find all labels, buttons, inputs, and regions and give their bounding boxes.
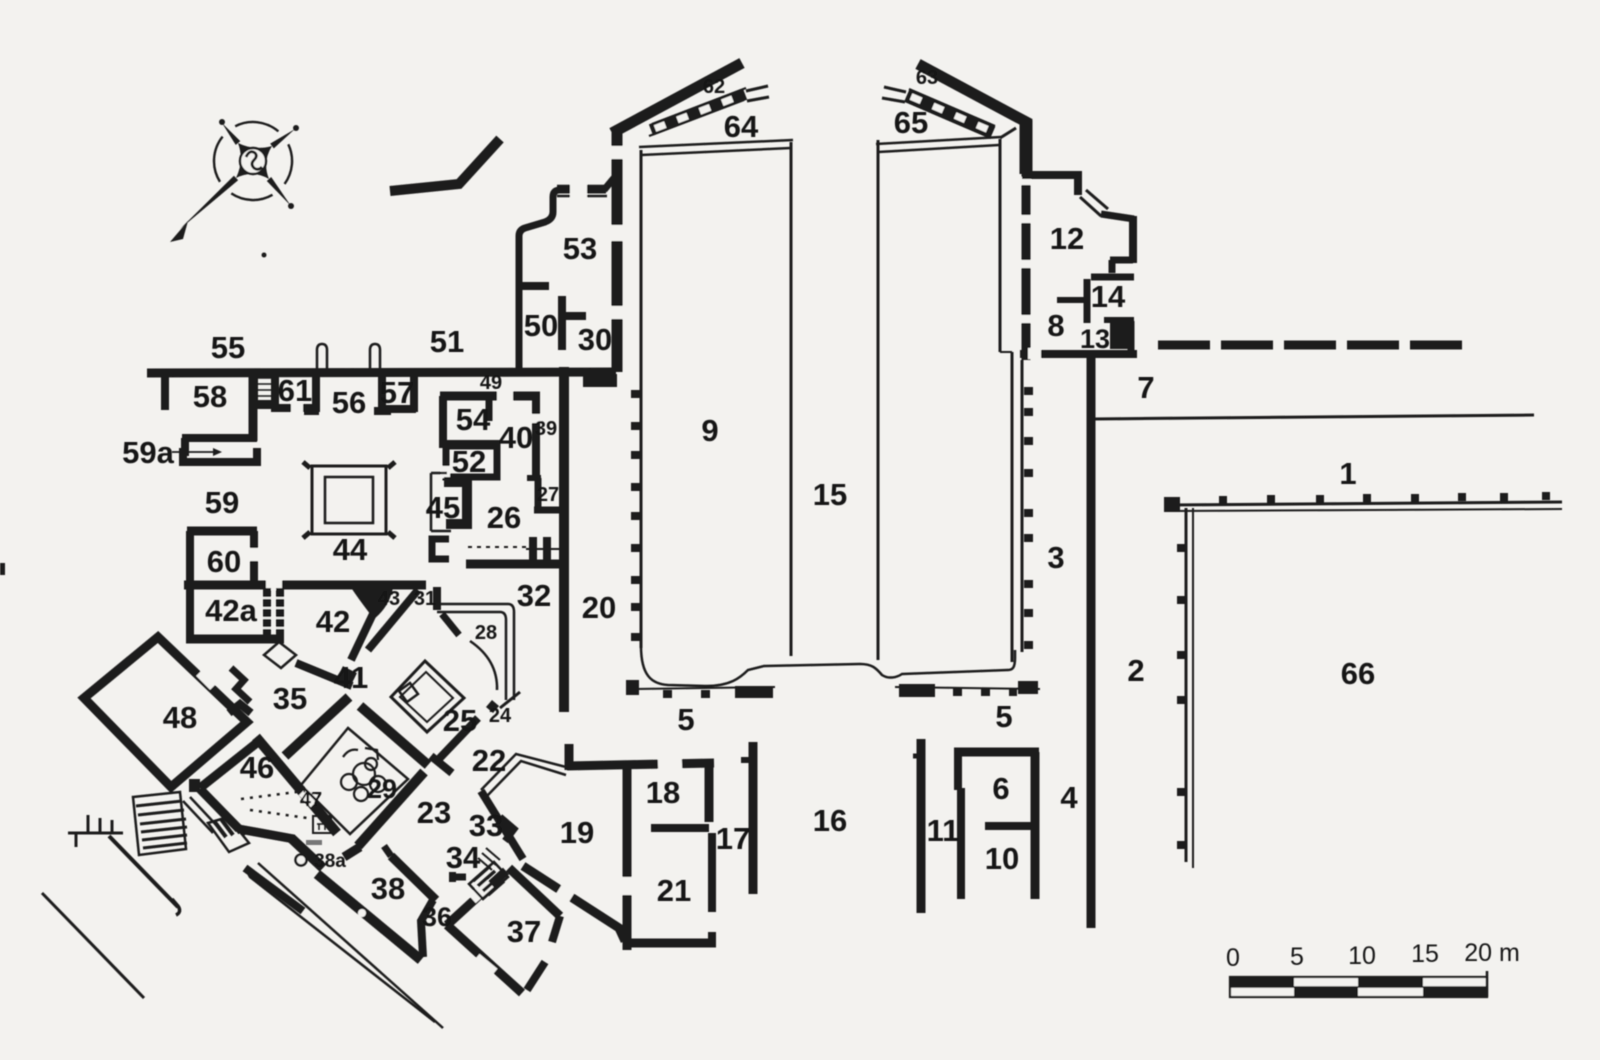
svg-text:6: 6 [992, 771, 1009, 806]
svg-text:7: 7 [1137, 370, 1154, 405]
svg-text:31: 31 [414, 588, 436, 610]
svg-text:4: 4 [1060, 780, 1078, 815]
svg-text:64: 64 [724, 109, 759, 144]
svg-text:55: 55 [211, 330, 245, 365]
svg-text:32: 32 [517, 578, 551, 613]
svg-text:15: 15 [813, 477, 847, 512]
svg-text:27: 27 [537, 484, 559, 506]
svg-text:18: 18 [646, 775, 680, 810]
svg-text:15: 15 [1411, 940, 1439, 968]
svg-text:20 m: 20 m [1464, 939, 1520, 967]
svg-text:30: 30 [578, 322, 612, 357]
svg-text:62: 62 [703, 76, 725, 98]
svg-text:17: 17 [716, 821, 750, 856]
svg-text:10: 10 [985, 841, 1019, 876]
svg-text:48: 48 [163, 700, 197, 735]
svg-text:53: 53 [563, 231, 597, 266]
svg-text:12: 12 [1050, 221, 1084, 256]
svg-text:8: 8 [1047, 308, 1064, 343]
svg-text:3: 3 [1047, 540, 1064, 575]
svg-text:36: 36 [422, 902, 452, 932]
svg-text:33: 33 [469, 808, 503, 843]
svg-text:41: 41 [334, 660, 368, 695]
svg-text:63: 63 [916, 67, 938, 89]
svg-text:26: 26 [487, 500, 521, 535]
svg-text:25: 25 [443, 703, 477, 738]
svg-text:57: 57 [380, 375, 414, 410]
svg-text:13: 13 [1080, 324, 1110, 354]
svg-text:19: 19 [560, 815, 594, 850]
svg-text:61: 61 [278, 373, 312, 408]
svg-text:38: 38 [371, 871, 405, 906]
svg-text:56: 56 [332, 385, 366, 420]
svg-text:60: 60 [207, 544, 241, 579]
svg-text:5: 5 [677, 702, 694, 737]
svg-text:11: 11 [927, 813, 960, 848]
svg-text:21: 21 [657, 873, 691, 908]
svg-text:37: 37 [507, 914, 541, 949]
svg-text:42: 42 [316, 604, 350, 639]
svg-text:38a: 38a [314, 851, 346, 872]
svg-text:16: 16 [813, 803, 847, 838]
svg-text:14: 14 [1091, 279, 1126, 314]
svg-text:49: 49 [480, 372, 502, 394]
svg-text:5: 5 [995, 699, 1012, 734]
svg-text:28: 28 [475, 622, 497, 644]
svg-text:5: 5 [1290, 943, 1304, 971]
svg-text:59: 59 [205, 485, 239, 520]
svg-text:65: 65 [894, 105, 928, 140]
svg-text:50: 50 [524, 308, 558, 343]
svg-text:29: 29 [367, 774, 397, 804]
svg-text:66: 66 [1341, 656, 1375, 691]
svg-text:46: 46 [240, 750, 274, 785]
svg-text:45: 45 [426, 490, 460, 525]
svg-text:22: 22 [472, 743, 506, 778]
svg-text:58: 58 [193, 379, 227, 414]
svg-text:9: 9 [701, 413, 718, 448]
svg-text:54: 54 [456, 402, 491, 437]
svg-text:1: 1 [1339, 456, 1356, 491]
svg-text:34: 34 [446, 840, 481, 875]
svg-text:0: 0 [1226, 944, 1240, 972]
svg-text:24: 24 [489, 705, 512, 727]
svg-text:20: 20 [582, 590, 616, 625]
svg-text:10: 10 [1348, 942, 1376, 970]
svg-text:42a: 42a [205, 593, 257, 628]
svg-text:2: 2 [1127, 653, 1144, 688]
svg-text:44: 44 [333, 532, 368, 567]
svg-text:35: 35 [273, 681, 307, 716]
svg-text:43: 43 [378, 588, 400, 610]
svg-text:59a: 59a [122, 435, 174, 470]
svg-text:40: 40 [499, 420, 533, 455]
svg-text:51: 51 [430, 324, 464, 359]
svg-text:39: 39 [535, 418, 557, 440]
svg-text:52: 52 [452, 444, 486, 479]
svg-text:47: 47 [300, 789, 322, 811]
svg-text:23: 23 [417, 795, 451, 830]
